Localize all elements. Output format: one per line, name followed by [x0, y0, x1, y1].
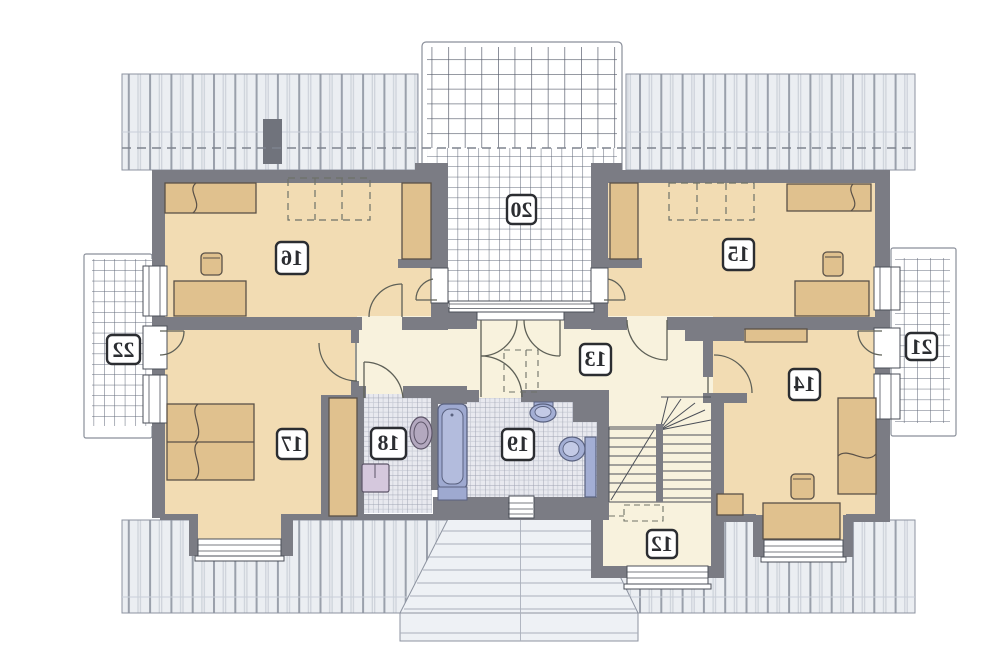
svg-text:12: 12: [651, 531, 673, 556]
svg-text:20: 20: [511, 197, 533, 222]
svg-text:22: 22: [113, 337, 135, 362]
svg-text:14: 14: [794, 371, 816, 396]
svg-text:21: 21: [911, 334, 933, 359]
svg-text:13: 13: [585, 346, 607, 371]
svg-text:17: 17: [281, 431, 303, 456]
svg-text:15: 15: [728, 241, 750, 266]
svg-text:16: 16: [281, 245, 303, 270]
svg-text:19: 19: [507, 431, 529, 456]
svg-text:18: 18: [378, 430, 400, 455]
